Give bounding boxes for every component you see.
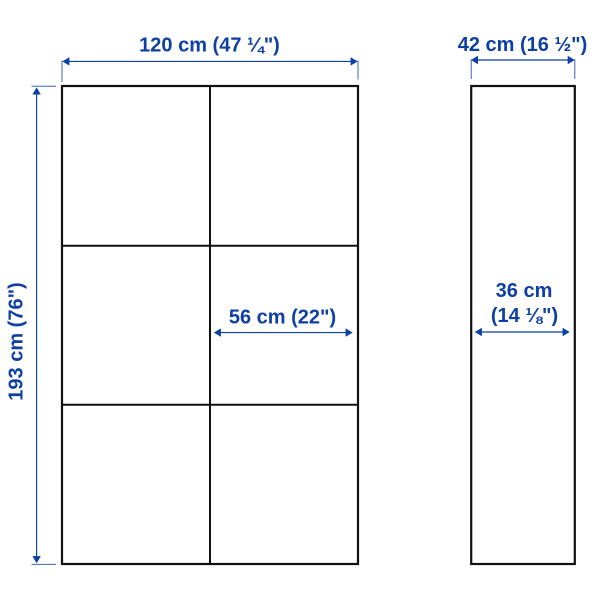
svg-text:193 cm (76"): 193 cm (76"): [6, 282, 28, 400]
svg-text:56 cm (22"): 56 cm (22"): [229, 306, 336, 328]
svg-text:42 cm (16 ½"): 42 cm (16 ½"): [458, 34, 588, 56]
svg-text:36 cm: 36 cm: [496, 280, 553, 302]
svg-text:(14 ⅛"): (14 ⅛"): [491, 305, 558, 327]
svg-text:120 cm (47 ¼"): 120 cm (47 ¼"): [139, 34, 280, 56]
